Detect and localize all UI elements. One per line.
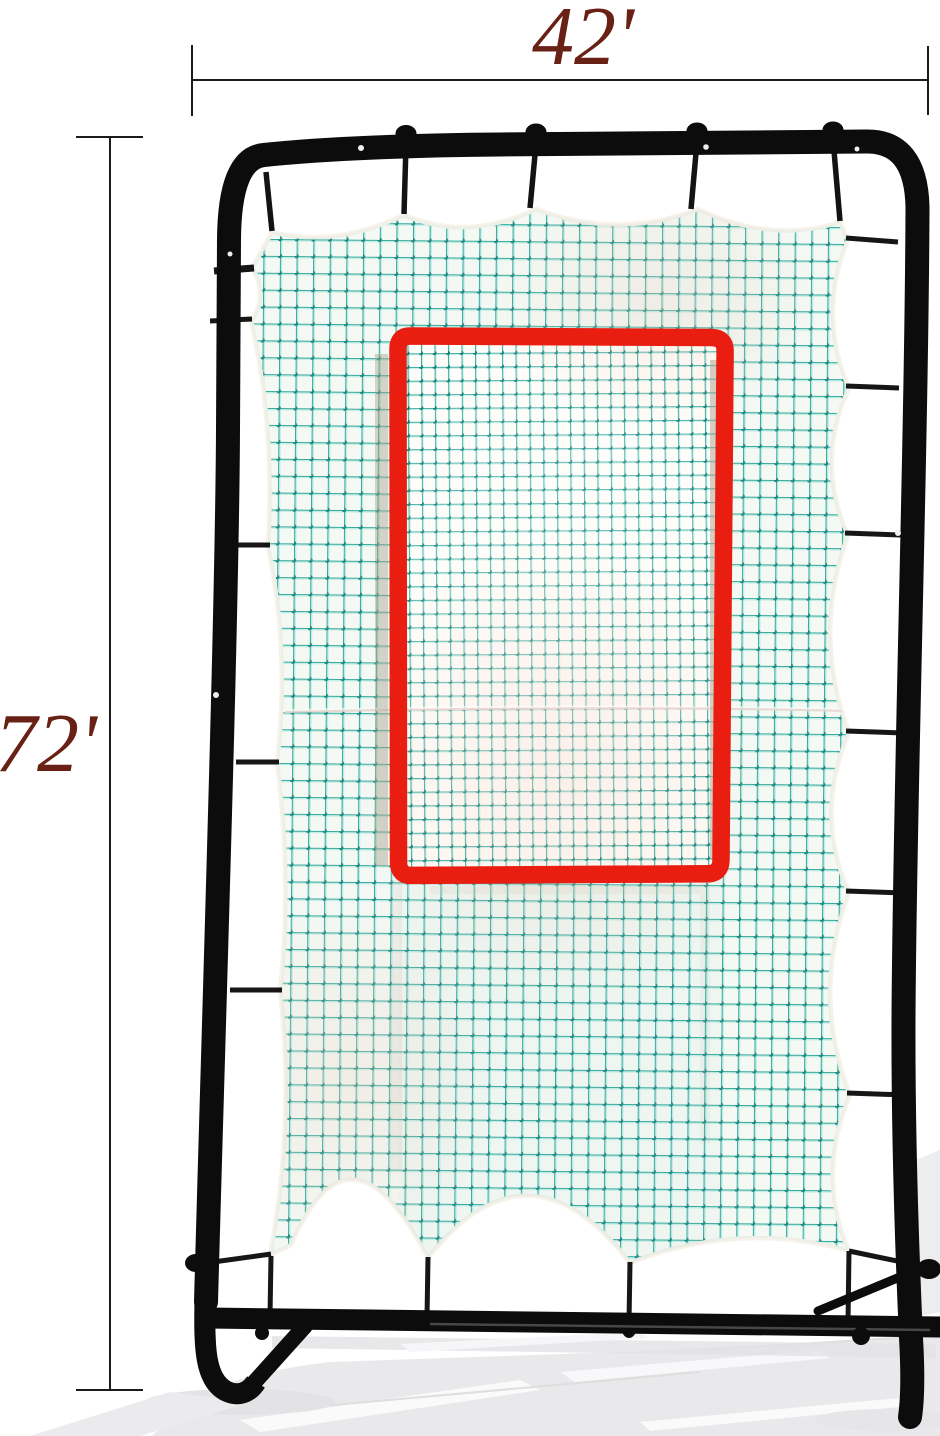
- svg-text:72': 72': [0, 697, 99, 790]
- svg-text:42': 42': [532, 0, 636, 83]
